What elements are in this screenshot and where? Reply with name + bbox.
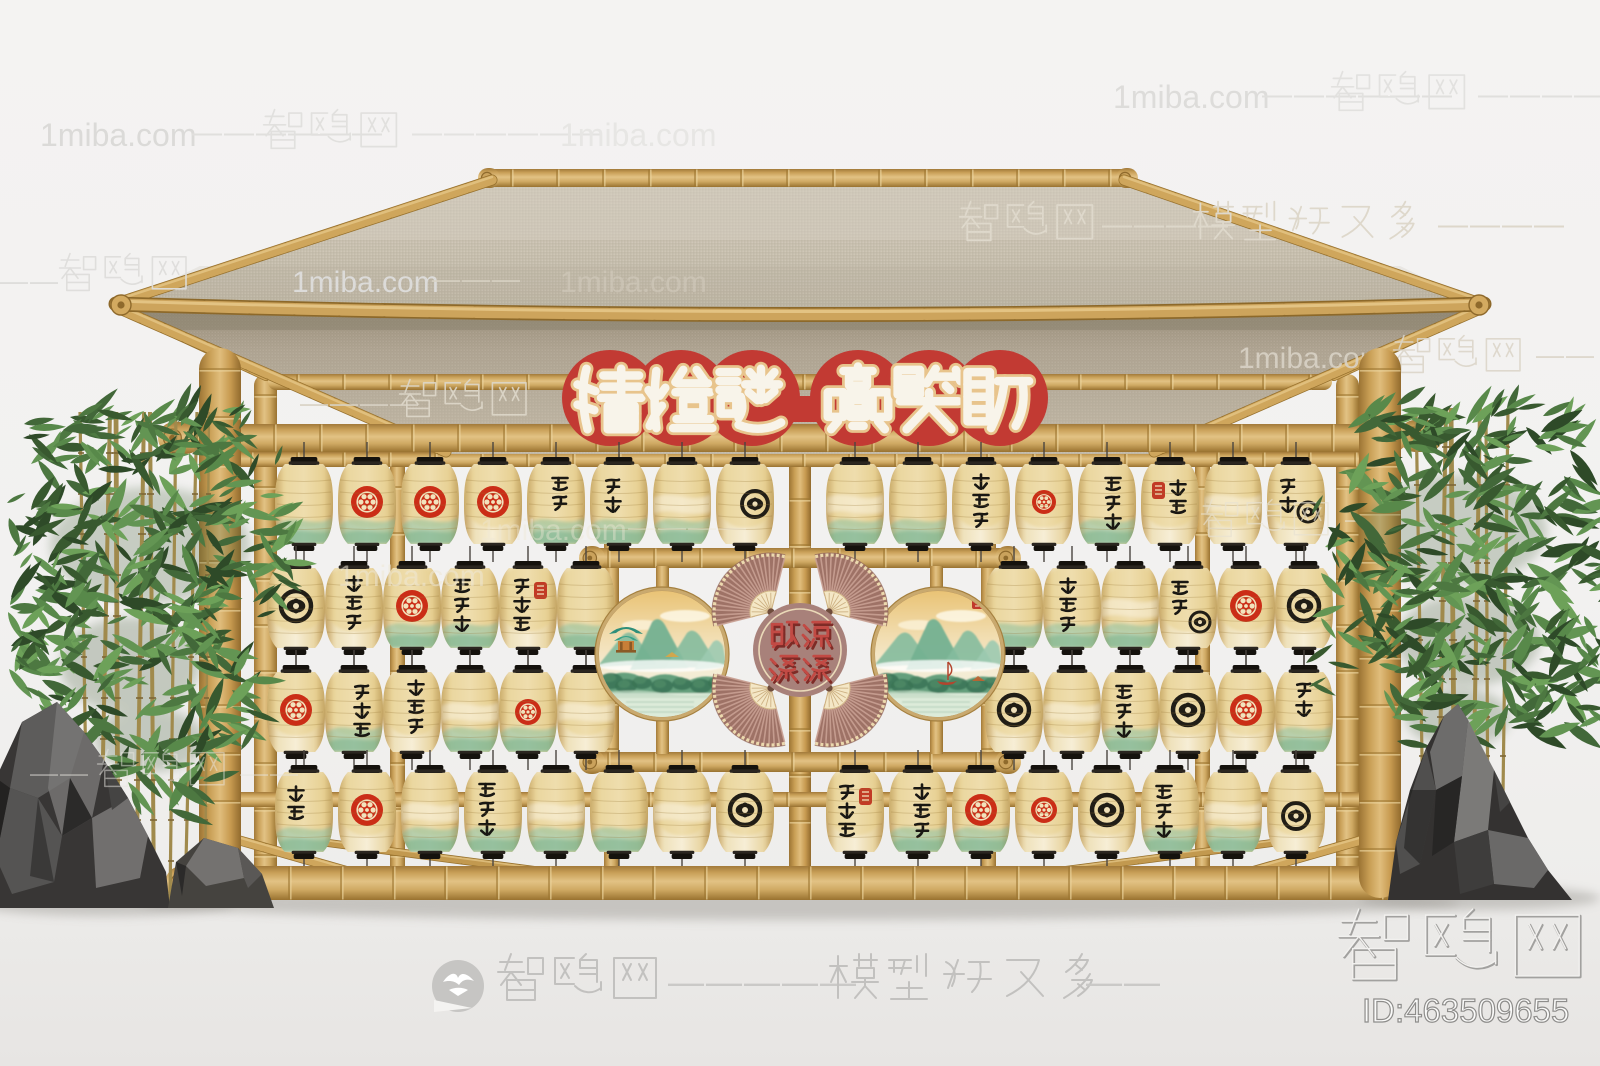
- svg-text:————: ————: [1438, 208, 1566, 241]
- svg-text:————: ————: [300, 387, 420, 418]
- svg-text:————: ————: [1102, 208, 1230, 241]
- svg-text:————: ————: [628, 511, 748, 542]
- svg-text:——: ——: [0, 265, 60, 296]
- svg-text:——: ——: [1086, 961, 1162, 1002]
- svg-text:1miba.com: 1miba.com: [292, 266, 439, 299]
- svg-text:——: ——: [30, 757, 90, 788]
- svg-text:1miba.com: 1miba.com: [480, 514, 627, 547]
- svg-text:———: ———: [432, 263, 522, 294]
- svg-text:——————: ——————: [192, 116, 384, 149]
- svg-text:——: ——: [240, 757, 300, 788]
- svg-text:1miba.com: 1miba.com: [1113, 79, 1270, 115]
- svg-text:1miba.com: 1miba.com: [560, 117, 717, 153]
- svg-text:——————: ——————: [1262, 78, 1454, 111]
- svg-text:1miba.com: 1miba.com: [560, 266, 707, 299]
- svg-text:ID:463509655: ID:463509655: [1362, 992, 1569, 1029]
- svg-text:1miba.com: 1miba.com: [40, 117, 197, 153]
- svg-text:—————: —————: [1478, 78, 1600, 111]
- svg-text:—————: —————: [668, 961, 858, 1002]
- svg-text:1miba.com: 1miba.com: [338, 560, 485, 593]
- svg-text:——: ——: [1536, 339, 1596, 370]
